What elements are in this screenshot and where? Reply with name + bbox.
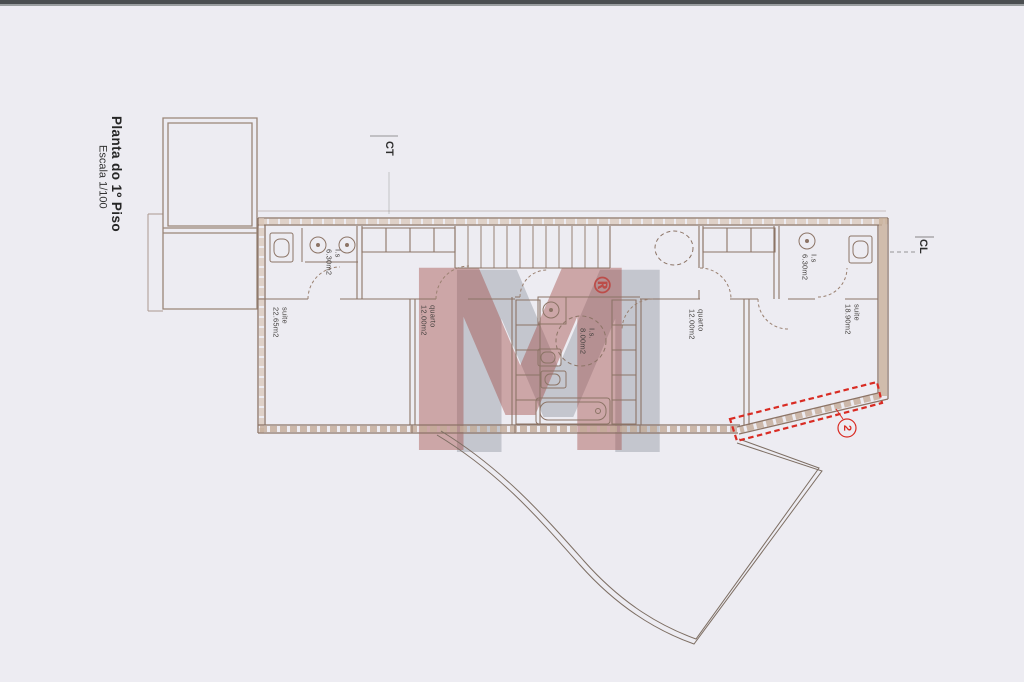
room-label-quarto-left: quarto 12.00m2 xyxy=(419,305,436,336)
room-area: 6.30m2 xyxy=(800,254,809,280)
room-area: 18.90m2 xyxy=(843,304,852,335)
revision-number: 2 xyxy=(841,425,853,431)
room-name: suite xyxy=(852,304,861,335)
watermark-logo: M M ® xyxy=(396,218,683,511)
scanned-floor-plan-page: M M ® xyxy=(0,0,1024,682)
room-label-bath-left: I.s 6.30m2 xyxy=(324,249,341,275)
room-name: quarto xyxy=(428,305,437,336)
room-area: 12.00m2 xyxy=(419,305,428,336)
drawing-title: Planta do 1º Piso xyxy=(109,116,125,232)
room-name: suite xyxy=(280,307,289,338)
floor-plan-drawing: M M ® xyxy=(0,0,1024,682)
room-area: 22.65m2 xyxy=(271,307,280,338)
toilet-left-bath xyxy=(270,233,293,262)
room-area: 12.00m2 xyxy=(687,309,696,340)
wardrobe-cells-right xyxy=(703,228,775,252)
annex-outline xyxy=(148,118,257,311)
room-name: I.s. xyxy=(587,328,596,354)
room-label-suite-left: suite 22.65m2 xyxy=(271,307,288,338)
ct-reference-label: CT xyxy=(383,141,395,156)
cl-reference-label: CL xyxy=(917,239,929,254)
room-area: 8.00m2 xyxy=(578,328,587,354)
room-name: I.s xyxy=(333,249,342,275)
room-name: I.s xyxy=(809,254,818,280)
room-label-suite-right: suite 18.90m2 xyxy=(843,304,860,335)
sink-right-bath xyxy=(799,233,815,249)
room-label-bath-central: I.s. 8.00m2 xyxy=(578,328,595,354)
drawing-scale: Escala 1/100 xyxy=(96,116,109,232)
room-name: quarto xyxy=(696,309,705,340)
room-label-quarto-right: quarto 12.00m2 xyxy=(687,309,704,340)
drawing-title-block: Planta do 1º Piso Escala 1/100 xyxy=(96,116,124,232)
room-area: 6.30m2 xyxy=(324,249,333,275)
registered-trademark-icon: ® xyxy=(588,274,614,297)
room-label-bath-right: I.s 6.30m2 xyxy=(800,254,817,280)
toilet-right-bath xyxy=(849,236,872,263)
